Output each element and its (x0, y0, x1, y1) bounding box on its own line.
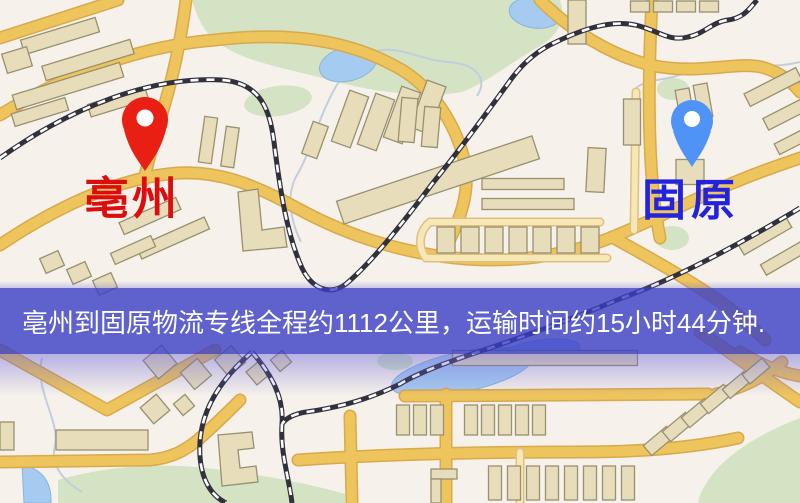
origin-city-label: 亳州 (84, 176, 180, 221)
route-info-text: 亳州到固原物流专线全程约1112公里，运输时间约15小时44分钟. (0, 303, 765, 340)
route-info-banner: 亳州到固原物流专线全程约1112公里，运输时间约15小时44分钟. (0, 288, 800, 354)
map-screenshot: 亳州 固原 亳州到固原物流专线全程约1112公里，运输时间约15小时44分钟. (0, 0, 800, 503)
destination-city-label: 固原 (642, 179, 740, 223)
origin-pin-icon[interactable] (122, 97, 168, 171)
destination-pin-icon[interactable] (671, 100, 713, 167)
map-canvas[interactable] (0, 0, 800, 503)
